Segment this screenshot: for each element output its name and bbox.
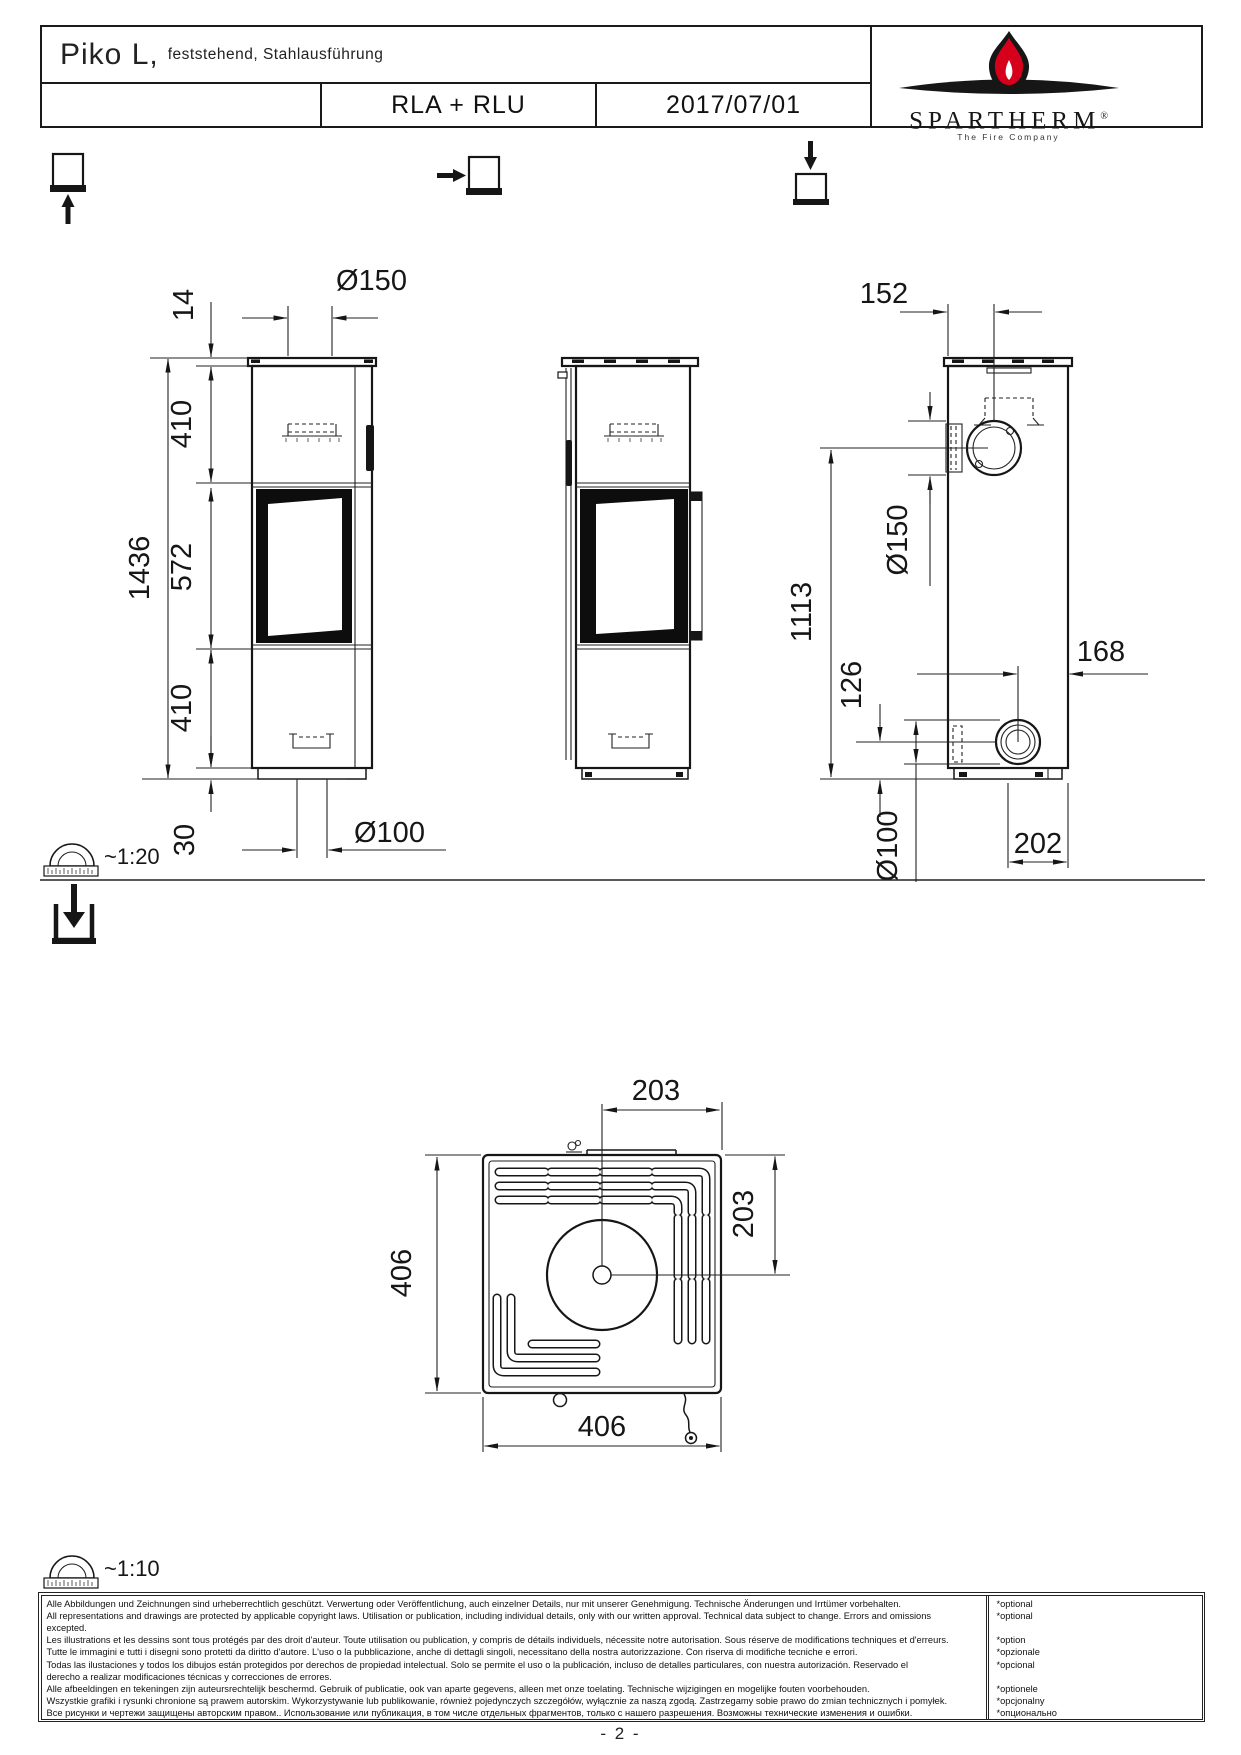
upper-vent-detail <box>604 424 664 445</box>
lower-vent-detail <box>289 734 334 748</box>
optional-term: *option <box>997 1634 1194 1646</box>
dim-base-height: 30 <box>169 824 201 856</box>
dim-depth: 406 <box>386 1249 418 1297</box>
scale-plan-label: ~1:10 <box>104 1556 160 1581</box>
scale-icon-elevation <box>44 844 98 876</box>
plan-view-icon <box>52 884 96 944</box>
disclaimer-line: Все рисунки и чертежи защищены авторским… <box>47 1707 981 1718</box>
optional-term <box>997 1622 1194 1634</box>
latch-detail <box>566 1141 582 1153</box>
scale-icon-plan <box>44 1556 98 1588</box>
disclaimer-text: Alle Abbildungen und Zeichnungen sind ur… <box>42 1596 986 1719</box>
optional-term: *optional <box>997 1610 1194 1622</box>
optional-terms: *optional *optional *option *opzionale *… <box>986 1596 1202 1719</box>
dim-back-air-diameter: Ø100 <box>872 811 904 882</box>
page-number: - 2 - <box>0 1724 1241 1744</box>
dim-flue-offset-x: 203 <box>632 1075 680 1107</box>
dim-lower-height: 410 <box>166 684 198 732</box>
front-view-icon <box>50 154 86 224</box>
disclaimer-line: excepted. <box>47 1622 981 1634</box>
optional-term: *opzionale <box>997 1646 1194 1658</box>
dim-air-offset: 168 <box>1077 636 1125 668</box>
front-view-drawing: Ø150 14 410 572 410 1436 30 Ø100 <box>124 265 446 858</box>
disclaimer-line: Alle afbeeldingen en tekeningen zijn aut… <box>47 1683 981 1695</box>
disclaimer-line: All representations and drawings are pro… <box>47 1610 981 1622</box>
disclaimer-line: Tutte le immagini e tutti i disegni sono… <box>47 1646 981 1658</box>
optional-term: *opcjonalny <box>997 1695 1194 1707</box>
optional-term: *opcional <box>997 1659 1194 1671</box>
disclaimer-line: derecho a realizar modificaciones técnic… <box>47 1671 981 1683</box>
lower-vent-detail <box>608 734 653 748</box>
optional-term: *optionele <box>997 1683 1194 1695</box>
grommet-detail <box>554 1394 567 1407</box>
datasheet-page: Piko L, feststehend, Stahlausführung RLA… <box>0 0 1241 1755</box>
top-view-drawing: 203 203 406 406 <box>386 1075 790 1452</box>
disclaimer-line: Todas las ilustaciones y todos los dibuj… <box>47 1659 981 1671</box>
disclaimer-block: Alle Abbildungen und Zeichnungen sind ur… <box>38 1592 1205 1722</box>
dim-air-inlet-diameter: Ø100 <box>354 817 425 849</box>
side-view-drawing <box>558 358 702 779</box>
dim-base-depth: 202 <box>1014 828 1062 860</box>
disclaimer-line: Wszystkie grafiki i rysunki chronione są… <box>47 1695 981 1707</box>
technical-drawing: Ø150 14 410 572 410 1436 30 Ø100 <box>0 0 1241 1755</box>
dim-flue-offset-y: 203 <box>728 1190 760 1238</box>
dim-plate-height: 14 <box>168 289 200 321</box>
dim-flue-diameter: Ø150 <box>336 265 407 297</box>
dim-air-center-height: 126 <box>836 661 868 709</box>
dim-back-flue-diameter: Ø150 <box>882 505 914 576</box>
scale-elevation-label: ~1:20 <box>104 844 160 869</box>
top-view-icon <box>793 141 829 205</box>
dim-width: 406 <box>578 1411 626 1443</box>
optional-term: *optional <box>997 1598 1194 1610</box>
back-view-drawing: 152 1113 Ø150 126 168 Ø100 202 <box>786 278 1148 882</box>
dim-total-height: 1436 <box>124 536 156 601</box>
dim-upper-height: 410 <box>166 400 198 448</box>
dim-flue-offset: 152 <box>860 278 908 310</box>
dim-flue-center-height: 1113 <box>786 582 818 642</box>
power-cable <box>684 1394 690 1432</box>
side-view-icon <box>437 157 502 195</box>
upper-vent-detail <box>282 424 342 445</box>
optional-term: *опционально <box>997 1707 1194 1719</box>
dim-window-height: 572 <box>166 543 198 591</box>
disclaimer-line: Alle Abbildungen und Zeichnungen sind ur… <box>47 1598 981 1610</box>
optional-term <box>997 1671 1194 1683</box>
disclaimer-line: Les illustrations et les dessins sont to… <box>47 1634 981 1646</box>
